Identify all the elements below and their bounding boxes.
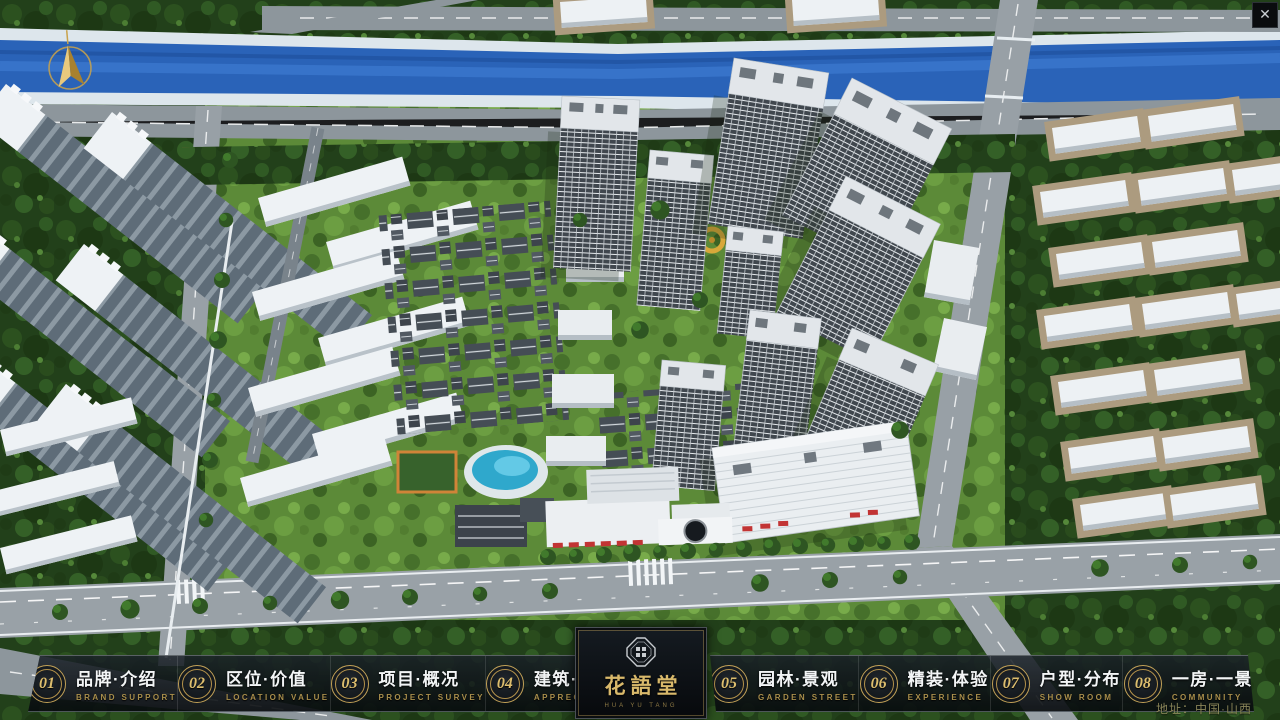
nav-number-badge: 03	[331, 665, 369, 703]
nav-item-location[interactable]: 02 区位·价值 LOCATION VALUE	[177, 656, 330, 711]
nav-label-en: BRAND SUPPORT	[76, 693, 177, 702]
nav-item-interior[interactable]: 06 精装·体验 EXPERIENCE	[858, 656, 990, 711]
nav-number-badge: 08	[1124, 665, 1162, 703]
nav-number-badge: 06	[860, 665, 898, 703]
address-text: 地址：中国·山西	[1156, 700, 1252, 717]
nav-label-en: SHOW ROOM	[1040, 693, 1114, 702]
nav-number-badge: 07	[992, 665, 1030, 703]
logo-title: 花語堂	[605, 670, 683, 700]
nav-item-project[interactable]: 03 项目·概况 PROJECT SURVEY	[330, 656, 485, 711]
bottom-navbar: 01 品牌·介绍 BRAND SUPPORT 02 区位·价值 LOCATION…	[0, 625, 1280, 720]
nav-number-badge: 01	[28, 665, 66, 703]
nav-panel-left: 01 品牌·介绍 BRAND SUPPORT 02 区位·价值 LOCATION…	[28, 655, 590, 712]
nav-label-cn: 区位·价值	[226, 665, 307, 690]
masterplan-3d-view[interactable]	[0, 0, 1280, 720]
presentation-stage: ✕ 01 品牌·介绍 BRAND SUPPORT 02 区位·价值 LOCATI…	[0, 0, 1280, 720]
nav-number-badge: 02	[178, 665, 216, 703]
nav-label-en: PROJECT SURVEY	[379, 693, 485, 702]
nav-label-cn: 户型·分布	[1040, 665, 1121, 690]
nav-label-cn: 品牌·介绍	[76, 665, 157, 690]
nav-label-cn: 项目·概况	[379, 665, 460, 690]
nav-item-brand[interactable]: 01 品牌·介绍 BRAND SUPPORT	[28, 656, 177, 711]
logo-subtitle: HUA YU TANG	[604, 703, 677, 709]
nav-label-en: EXPERIENCE	[908, 693, 984, 702]
close-button[interactable]: ✕	[1252, 2, 1278, 28]
nav-item-garden[interactable]: 05 园林·景观 GARDEN STREET	[710, 656, 858, 711]
nav-label-cn: 精装·体验	[908, 665, 989, 690]
logo-seal-icon	[626, 637, 656, 667]
nav-number-badge: 04	[486, 665, 524, 703]
nav-label-cn: 园林·景观	[758, 665, 839, 690]
logo-panel[interactable]: 花語堂 HUA YU TANG	[575, 627, 707, 719]
nav-item-floorplan[interactable]: 07 户型·分布 SHOW ROOM	[990, 656, 1122, 711]
nav-label-en: LOCATION VALUE	[226, 693, 330, 702]
nav-label-en: GARDEN STREET	[758, 693, 858, 702]
nav-label-cn: 一房·一景	[1172, 665, 1253, 690]
nav-number-badge: 05	[710, 665, 748, 703]
